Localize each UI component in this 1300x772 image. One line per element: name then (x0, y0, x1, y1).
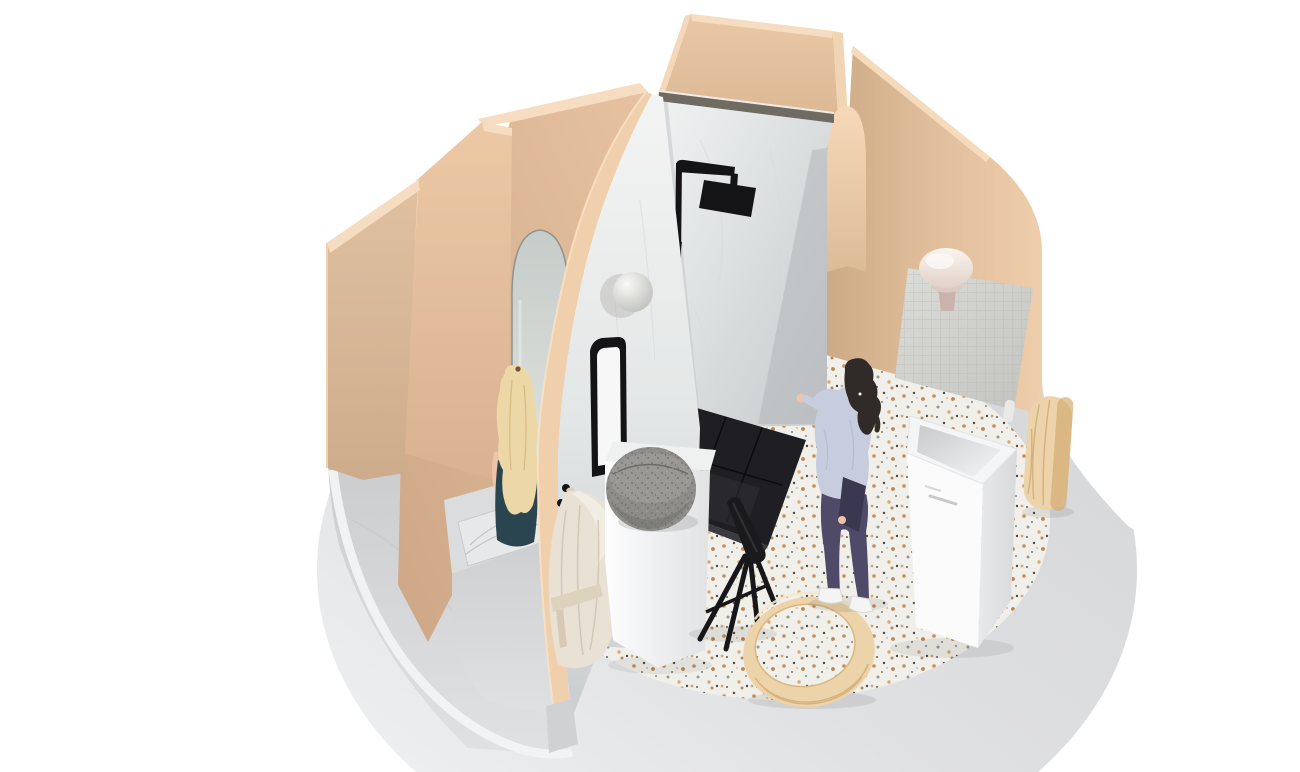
basin-speckles (606, 447, 696, 531)
figure-hair-blonde (497, 365, 538, 515)
sphere-globe (613, 272, 653, 312)
figure-shoe-left (818, 588, 843, 603)
figure-earring (859, 393, 862, 396)
machine-shadow (890, 638, 1014, 658)
figure-hand-holding (838, 516, 846, 524)
machine-front-face (907, 453, 983, 648)
wood-disc (1022, 395, 1074, 518)
bathroom-render (0, 0, 1300, 772)
lamp-cap-highlight (926, 253, 954, 269)
hair-tie (515, 366, 520, 371)
wall-arch-edge (827, 106, 866, 272)
render-canvas (0, 0, 1300, 772)
